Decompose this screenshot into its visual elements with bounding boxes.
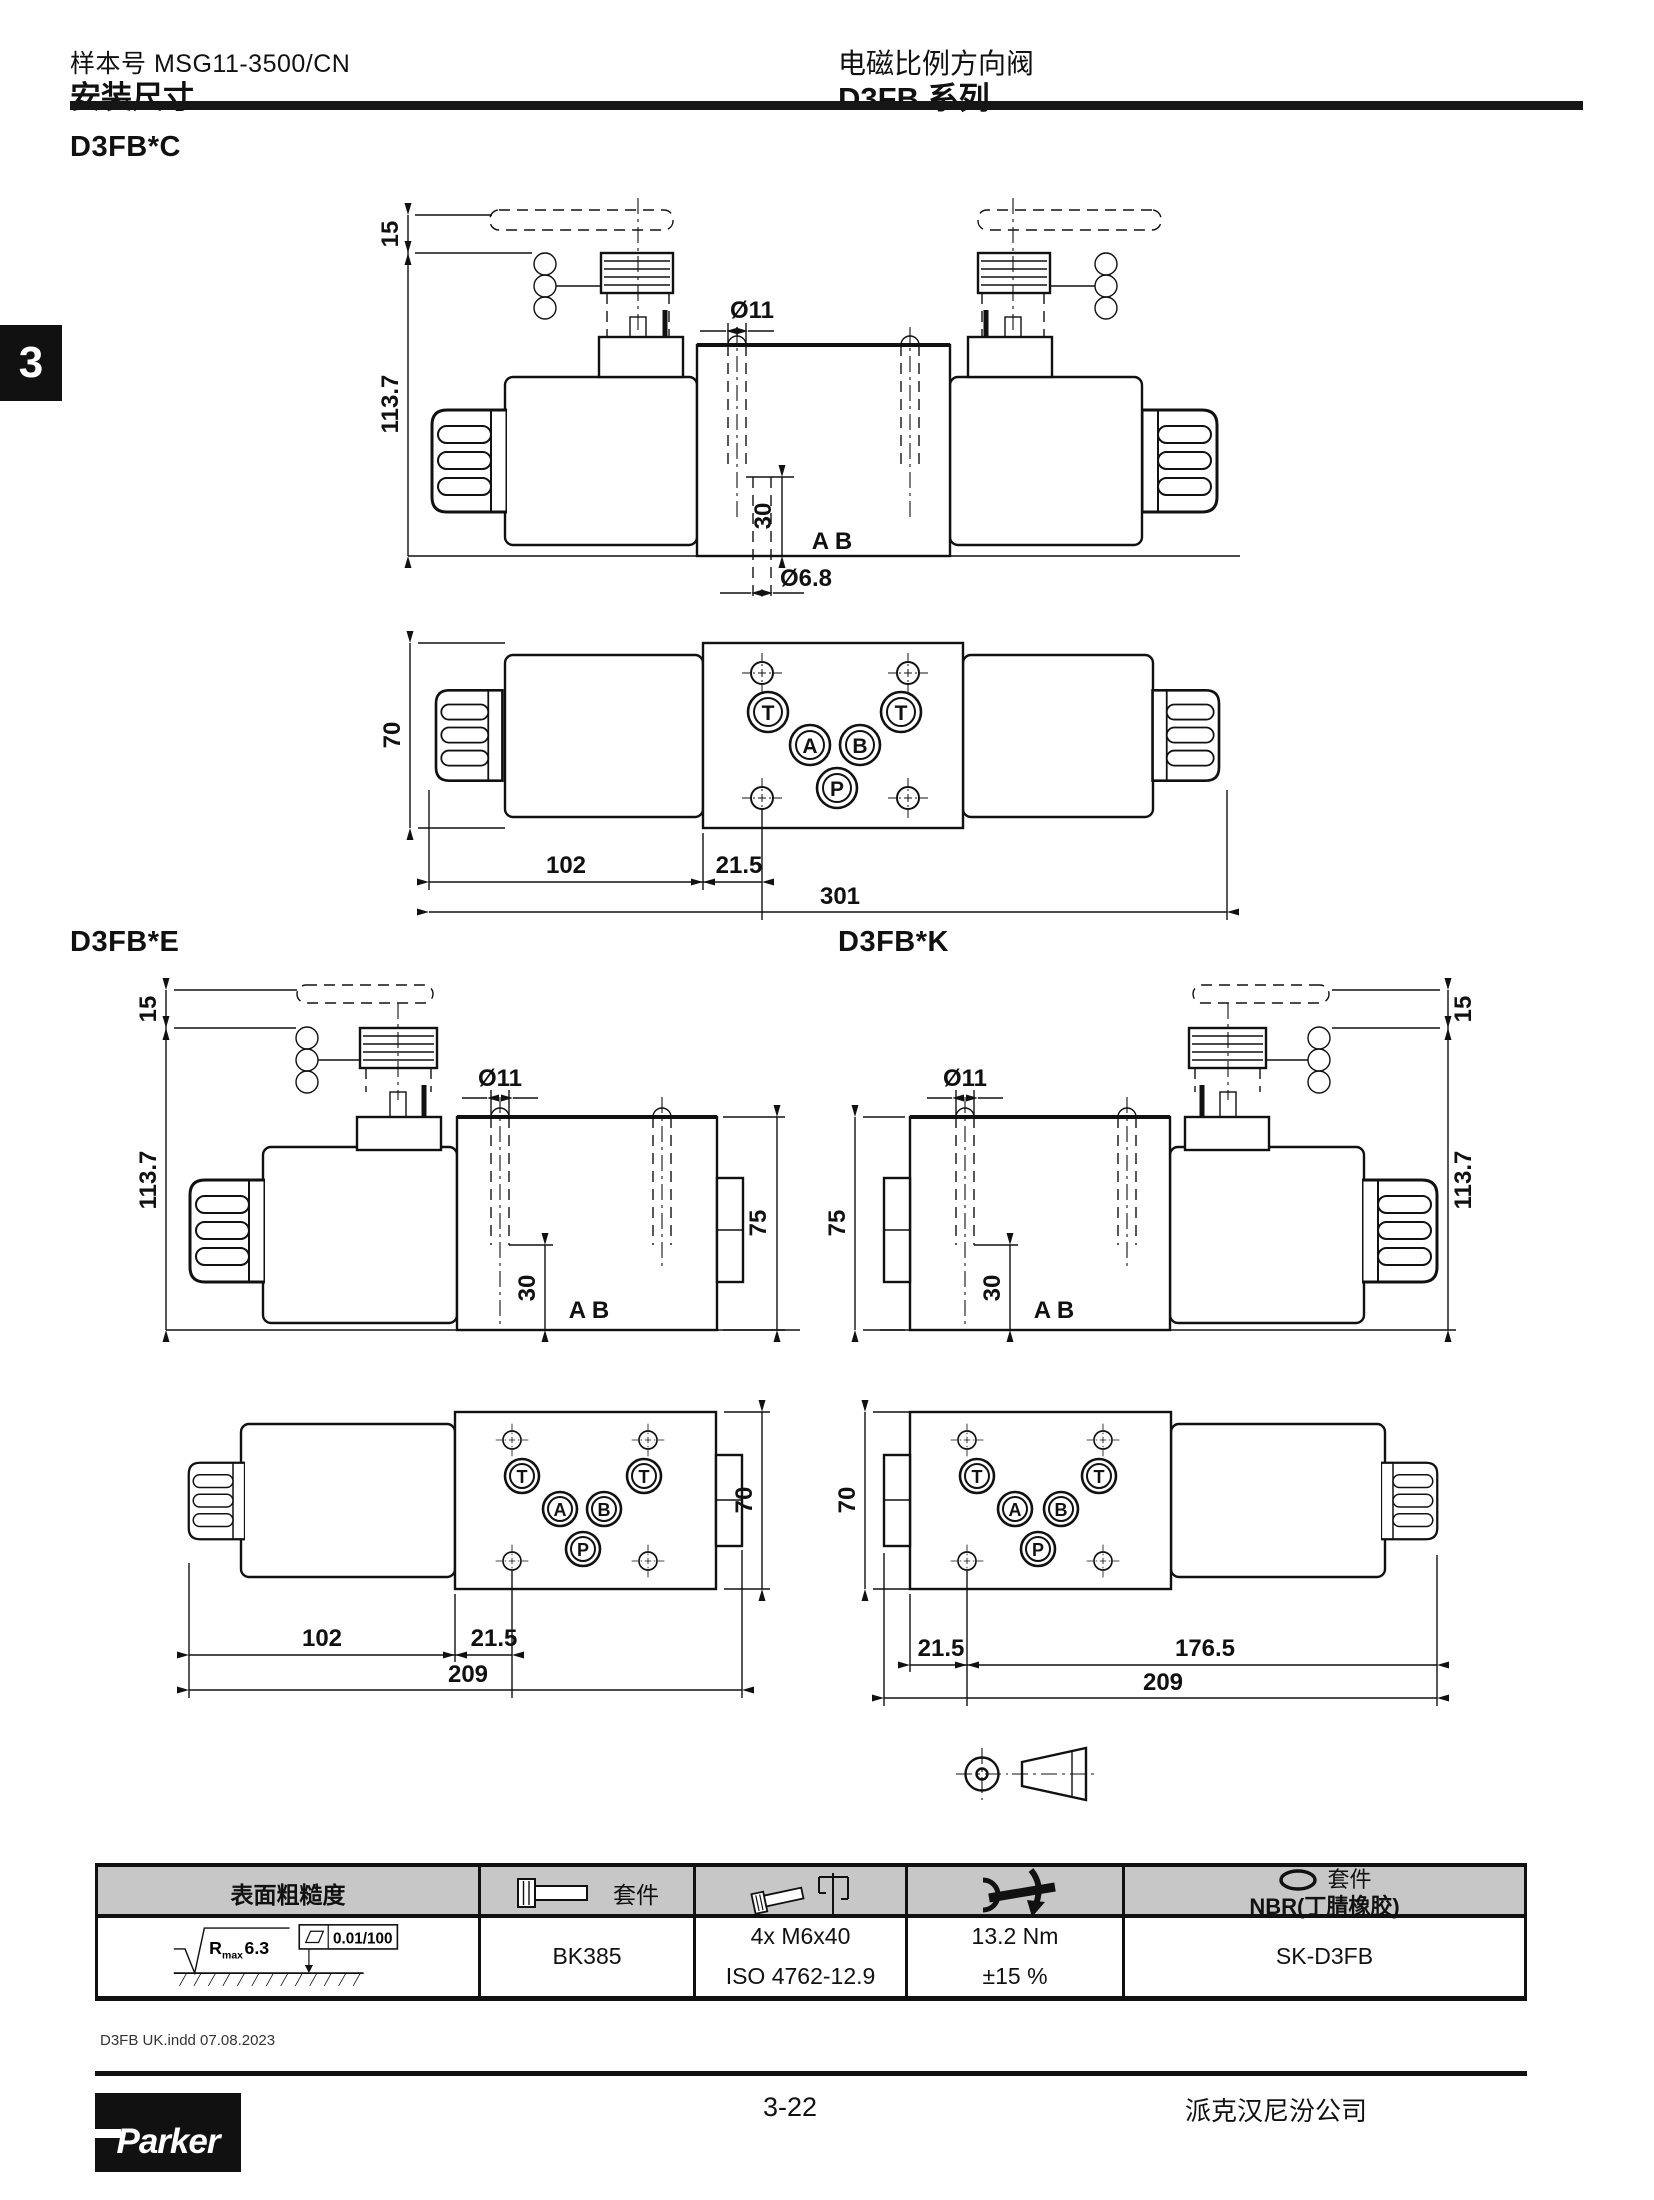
d3fbe-side-view: 15 113.7 Ø11 75 30 A B — [135, 985, 800, 1330]
port-a: A — [790, 725, 830, 765]
svg-text:T: T — [639, 1467, 650, 1487]
port-t: T — [748, 692, 788, 732]
port-t: T — [960, 1459, 994, 1493]
port-t: T — [1082, 1459, 1116, 1493]
svg-text:A: A — [554, 1500, 567, 1520]
dim-30: 30 — [514, 1275, 541, 1302]
din-connector-icon — [296, 985, 441, 1150]
dim-113-7: 113.7 — [377, 375, 404, 434]
port-b: B — [840, 725, 880, 765]
ports-ab-label: A B — [1034, 1297, 1074, 1324]
dim-70: 70 — [379, 722, 406, 749]
svg-text:A: A — [1009, 1500, 1022, 1520]
roughness-value: 6.3 — [245, 1938, 270, 1958]
port-p: P — [817, 768, 857, 808]
cell-torque: 13.2 Nm ±15 % — [908, 1918, 1125, 1996]
dim-dia11: Ø11 — [478, 1065, 522, 1092]
dim-70: 70 — [731, 1487, 758, 1514]
chapter-tab: 3 — [0, 325, 62, 401]
port-b: B — [587, 1492, 621, 1526]
seal-kit-label: 套件 — [1327, 1867, 1371, 1892]
ports-ab-label: A B — [812, 528, 852, 555]
dim-70: 70 — [834, 1487, 861, 1514]
dim-113-7: 113.7 — [135, 1151, 162, 1210]
port-t: T — [627, 1459, 661, 1493]
dim-102: 102 — [546, 852, 586, 879]
port-a: A — [998, 1492, 1032, 1526]
logo-notch — [95, 2129, 121, 2138]
dim-113-7: 113.7 — [1450, 1151, 1477, 1210]
seal-material-label: NBR(丁腈橡胶) — [1249, 1894, 1399, 1919]
header-bolt-kit: 套件 — [481, 1867, 696, 1920]
screw-caliper-icon — [747, 1869, 855, 1917]
header-rule — [70, 101, 1583, 110]
dim-30: 30 — [979, 1275, 1006, 1302]
dim-15: 15 — [377, 221, 404, 248]
ports-ab-label: A B — [569, 1297, 609, 1324]
flatness-value: 0.01/100 — [333, 1930, 392, 1947]
header-seal-kit: 套件 NBR(丁腈橡胶) — [1125, 1867, 1524, 1920]
footer-rule — [95, 2071, 1527, 2076]
d3fbc-bottom-view: T A B T P 70 102 21.5 301 — [379, 643, 1227, 920]
torque-tolerance: ±15 % — [982, 1962, 1047, 1992]
dim-75: 75 — [745, 1210, 772, 1237]
dim-102: 102 — [302, 1625, 342, 1652]
o-ring-icon — [1277, 1868, 1319, 1892]
d3fbc-side-view: 15 113.7 Ø11 30 A B Ø6.8 — [377, 198, 1240, 598]
chapter-number: 3 — [19, 338, 43, 388]
projection-symbol-icon — [956, 1748, 1096, 1800]
logo-text: Parker — [117, 2122, 220, 2162]
bolts-qty: 4x M6x40 — [751, 1922, 851, 1952]
svg-text:T: T — [895, 702, 908, 725]
svg-text:A: A — [802, 735, 817, 758]
parker-logo: Parker — [95, 2093, 241, 2172]
svg-text:B: B — [852, 735, 867, 758]
svg-text:P: P — [830, 778, 844, 801]
torque-wrench-icon — [967, 1868, 1063, 1918]
page-number: 3-22 — [700, 2092, 880, 2123]
surface-roughness-symbol: R max 6.3 0.01/100 — [138, 1920, 438, 1994]
dim-21-5: 21.5 — [918, 1635, 965, 1662]
dim-30: 30 — [750, 503, 777, 530]
cell-bolt-kit: BK385 — [481, 1918, 696, 1996]
bolt-kit-label: 套件 — [613, 1876, 659, 1910]
port-p: P — [1021, 1532, 1055, 1566]
d3fbk-bottom-view: T A B T P 70 21.5 176.5 209 — [834, 1412, 1437, 1706]
section-label-d3fbc: D3FB*C — [70, 131, 181, 164]
dim-15: 15 — [135, 996, 162, 1023]
svg-text:T: T — [517, 1467, 528, 1487]
company-name: 派克汉尼汾公司 — [1185, 2091, 1367, 2128]
port-p: P — [566, 1532, 600, 1566]
dim-21-5: 21.5 — [716, 852, 763, 879]
svg-text:T: T — [972, 1467, 983, 1487]
dim-dia6-8: Ø6.8 — [780, 565, 832, 592]
svg-text:P: P — [577, 1540, 589, 1560]
mounting-spec-table: 表面粗糙度 套件 — [95, 1863, 1527, 2001]
spec-table-data-row: R max 6.3 0.01/100 BK385 4x M6x40 ISO 47… — [98, 1918, 1524, 1996]
section-label-d3fbe: D3FB*E — [70, 926, 179, 959]
dim-176-5: 176.5 — [1175, 1635, 1235, 1662]
section-label-d3fbk: D3FB*K — [838, 926, 949, 959]
dim-15: 15 — [1450, 996, 1477, 1023]
svg-text:B: B — [598, 1500, 611, 1520]
cell-surface-roughness: R max 6.3 0.01/100 — [98, 1918, 481, 1996]
svg-text:T: T — [762, 702, 775, 725]
bolts-standard: ISO 4762-12.9 — [726, 1962, 876, 1992]
port-a: A — [543, 1492, 577, 1526]
socket-screw-icon — [515, 1875, 603, 1911]
spec-table-header-row: 表面粗糙度 套件 — [98, 1867, 1524, 1918]
dim-dia11: Ø11 — [943, 1065, 987, 1092]
dim-75: 75 — [824, 1210, 851, 1237]
port-t: T — [881, 692, 921, 732]
torque-value: 13.2 Nm — [972, 1922, 1059, 1952]
file-note: D3FB UK.indd 07.08.2023 — [100, 2032, 275, 2049]
dim-dia11: Ø11 — [730, 297, 774, 324]
svg-text:T: T — [1094, 1467, 1105, 1487]
cell-bolt-spec: 4x M6x40 ISO 4762-12.9 — [696, 1918, 908, 1996]
page-title: 安装尺寸 — [70, 72, 194, 117]
header-surface-roughness: 表面粗糙度 — [98, 1867, 481, 1920]
catalog-page: { "header": { "catalog_label": "样本号 MSG1… — [0, 0, 1654, 2200]
din-connector-icon — [490, 198, 683, 377]
dim-301: 301 — [820, 883, 860, 910]
port-b: B — [1044, 1492, 1078, 1526]
override-knob-icon — [432, 410, 507, 512]
roughness-sub: max — [222, 1951, 243, 1962]
roughness-r: R — [209, 1938, 222, 1958]
svg-text:B: B — [1055, 1500, 1068, 1520]
header-torque — [908, 1867, 1125, 1920]
d3fbe-bottom-view: T A B T P 70 102 21.5 209 — [189, 1412, 770, 1698]
cell-seal-kit: SK-D3FB — [1125, 1918, 1524, 1996]
series-title: D3FB 系列 — [838, 73, 990, 118]
dim-209: 209 — [448, 1661, 488, 1688]
port-t: T — [505, 1459, 539, 1493]
header-bolt-spec — [696, 1867, 908, 1920]
dim-21-5: 21.5 — [471, 1625, 518, 1652]
surface-roughness-label: 表面粗糙度 — [231, 1876, 346, 1910]
d3fbk-side-view: Ø11 75 30 A B 15 113.7 — [824, 985, 1477, 1330]
dim-209: 209 — [1143, 1669, 1183, 1696]
svg-text:P: P — [1032, 1540, 1044, 1560]
